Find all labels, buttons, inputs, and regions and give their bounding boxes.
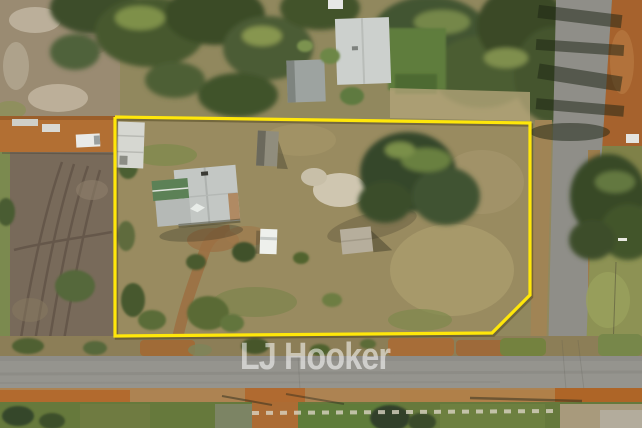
- trailer: [12, 119, 38, 126]
- white-caravan: [256, 229, 278, 255]
- aerial-photo-canvas: [0, 0, 642, 428]
- white-shed-left: [116, 122, 145, 169]
- road-verge: [0, 388, 642, 428]
- neighbour-shed-roof: [286, 59, 325, 102]
- neighbour-house-roof: [335, 17, 391, 85]
- left-dirt-track: [0, 116, 118, 152]
- parked-car-right: [626, 134, 639, 143]
- aerial-photo: LJ Hooker: [0, 0, 642, 428]
- trailer-2: [42, 124, 60, 132]
- parked-car: [328, 0, 343, 9]
